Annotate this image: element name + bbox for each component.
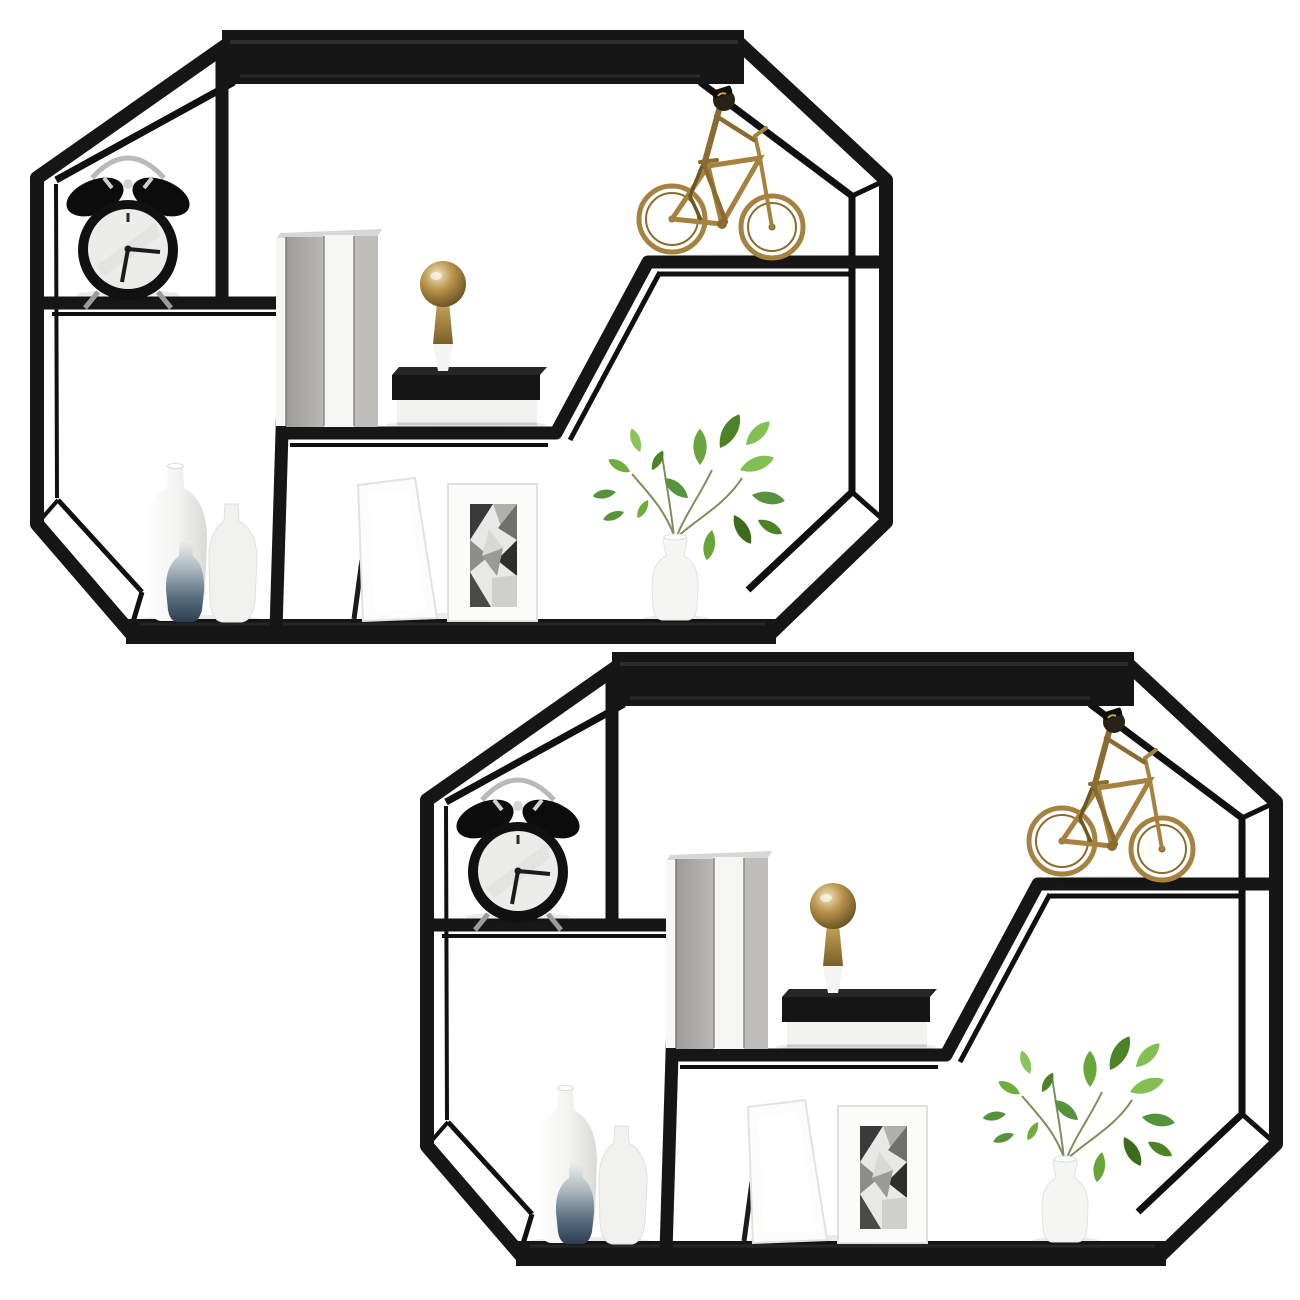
shelf-instances <box>37 30 1276 1266</box>
shelf-1 <box>37 30 886 644</box>
shelf-scene: Set of two identical octagonal matte-bla… <box>0 0 1300 1300</box>
shelf-2 <box>427 652 1276 1266</box>
product-image: Set of two identical octagonal matte-bla… <box>0 0 1300 1300</box>
